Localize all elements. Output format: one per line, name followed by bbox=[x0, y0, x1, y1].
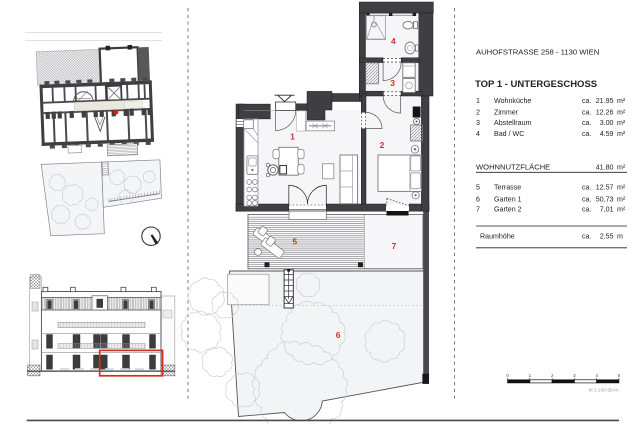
svg-text:1: 1 bbox=[529, 373, 532, 378]
svg-text:50,73: 50,73 bbox=[596, 195, 614, 203]
svg-text:Bad / WC: Bad / WC bbox=[494, 130, 524, 138]
svg-text:M 1:100 @A4: M 1:100 @A4 bbox=[589, 388, 619, 394]
svg-text:3: 3 bbox=[476, 119, 480, 127]
svg-text:ca.: ca. bbox=[582, 183, 591, 191]
svg-text:2: 2 bbox=[551, 373, 554, 378]
svg-text:4: 4 bbox=[391, 36, 396, 46]
svg-text:3: 3 bbox=[390, 78, 395, 88]
svg-text:ca.: ca. bbox=[582, 97, 591, 105]
svg-text:4: 4 bbox=[476, 130, 480, 138]
svg-text:m²: m² bbox=[617, 183, 626, 191]
svg-text:ca.: ca. bbox=[582, 119, 591, 127]
svg-text:ca.: ca. bbox=[582, 108, 591, 116]
svg-text:41.80: 41.80 bbox=[596, 163, 614, 171]
svg-text:Raumhöhe: Raumhöhe bbox=[480, 232, 515, 240]
svg-text:m²: m² bbox=[617, 119, 626, 127]
svg-text:ca.: ca. bbox=[582, 232, 591, 240]
svg-text:2.55: 2.55 bbox=[600, 232, 614, 240]
svg-text:12.26: 12.26 bbox=[596, 108, 614, 116]
svg-text:TOP 1 - UNTERGESCHOSS: TOP 1 - UNTERGESCHOSS bbox=[475, 79, 597, 90]
svg-text:AUHOFSTRASSE 258 - 1130 WIEN: AUHOFSTRASSE 258 - 1130 WIEN bbox=[476, 48, 599, 57]
svg-text:m: m bbox=[617, 232, 623, 240]
svg-text:m²: m² bbox=[617, 206, 626, 214]
svg-text:Abstellraum: Abstellraum bbox=[494, 119, 532, 127]
svg-text:3: 3 bbox=[573, 373, 576, 378]
svg-text:Terrasse: Terrasse bbox=[494, 183, 521, 191]
svg-text:1: 1 bbox=[476, 97, 480, 105]
svg-text:5: 5 bbox=[476, 183, 480, 191]
svg-text:Wohnküche: Wohnküche bbox=[494, 97, 531, 105]
svg-text:5: 5 bbox=[618, 373, 621, 378]
svg-text:Garten 1: Garten 1 bbox=[494, 195, 522, 203]
svg-text:7: 7 bbox=[476, 206, 480, 214]
svg-text:m²: m² bbox=[617, 195, 626, 203]
svg-text:m²: m² bbox=[617, 163, 626, 171]
svg-text:WOHNNUTZFLÄCHE: WOHNNUTZFLÄCHE bbox=[476, 162, 550, 171]
svg-text:1: 1 bbox=[290, 132, 295, 142]
svg-text:0: 0 bbox=[506, 373, 509, 378]
svg-text:7: 7 bbox=[392, 241, 397, 251]
svg-text:7,01: 7,01 bbox=[600, 206, 614, 214]
svg-text:ca.: ca. bbox=[582, 195, 591, 203]
svg-text:4.59: 4.59 bbox=[600, 130, 614, 138]
svg-text:m²: m² bbox=[617, 108, 626, 116]
svg-text:m²: m² bbox=[617, 97, 626, 105]
svg-text:4: 4 bbox=[595, 373, 598, 378]
svg-text:5: 5 bbox=[292, 236, 297, 246]
svg-text:m²: m² bbox=[617, 130, 626, 138]
svg-text:2: 2 bbox=[380, 140, 385, 150]
svg-text:Zimmer: Zimmer bbox=[494, 108, 519, 116]
svg-text:6: 6 bbox=[476, 195, 480, 203]
svg-text:6: 6 bbox=[336, 330, 341, 340]
svg-text:ca.: ca. bbox=[582, 130, 591, 138]
svg-text:2: 2 bbox=[476, 108, 480, 116]
svg-text:Garten 2: Garten 2 bbox=[494, 206, 522, 214]
svg-text:3.00: 3.00 bbox=[600, 119, 614, 127]
svg-text:21.95: 21.95 bbox=[596, 97, 614, 105]
svg-text:12.57: 12.57 bbox=[596, 183, 614, 191]
svg-text:ca.: ca. bbox=[582, 206, 591, 214]
